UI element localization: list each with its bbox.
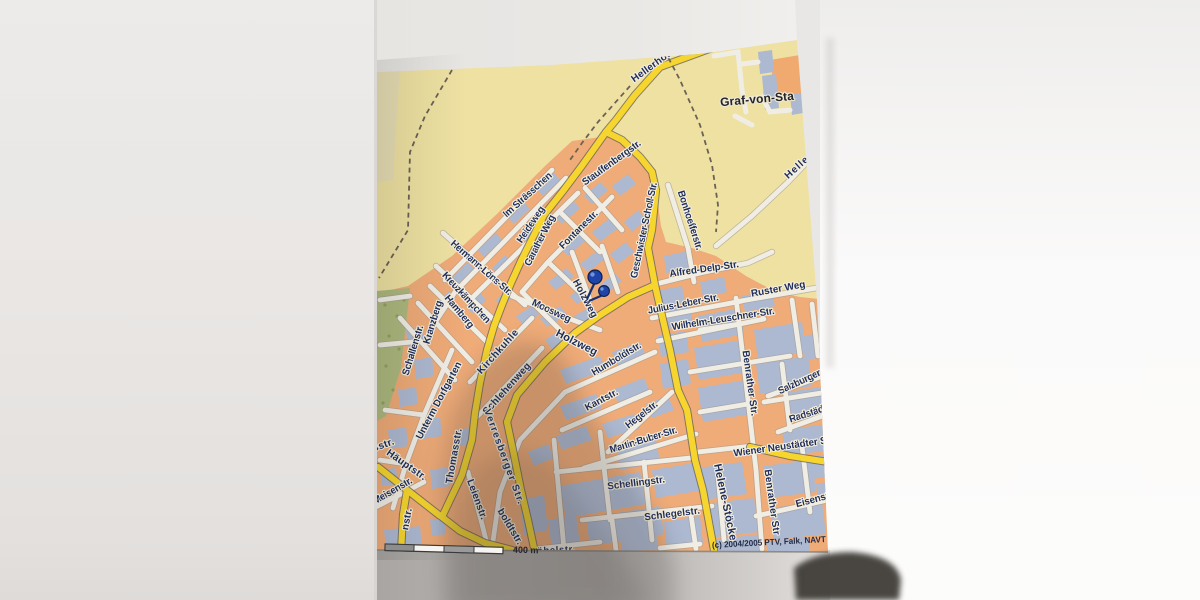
- svg-text:400 m: 400 m: [513, 545, 539, 556]
